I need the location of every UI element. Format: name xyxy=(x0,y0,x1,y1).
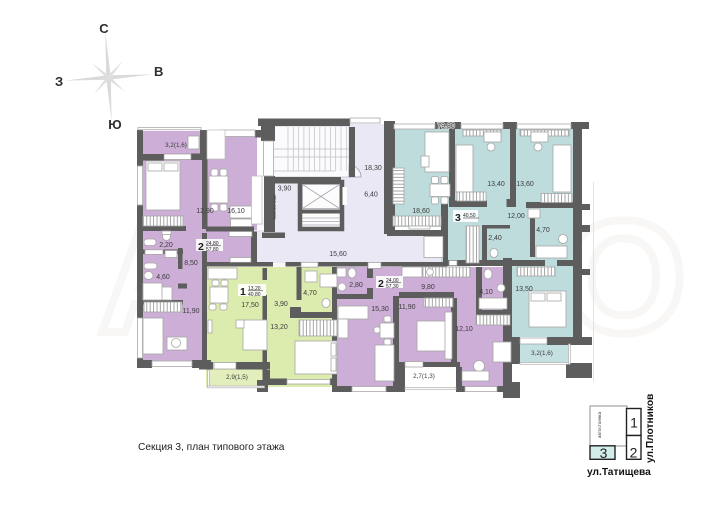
svg-text:13,40: 13,40 xyxy=(487,181,505,188)
svg-text:79,80: 79,80 xyxy=(437,123,455,130)
svg-text:2,7(1,3): 2,7(1,3) xyxy=(413,373,435,380)
svg-text:3: 3 xyxy=(600,445,608,461)
svg-text:40,80: 40,80 xyxy=(248,292,261,298)
svg-text:ул.Татищева: ул.Татищева xyxy=(587,467,651,478)
svg-text:11,90: 11,90 xyxy=(399,304,416,311)
svg-text:13,20: 13,20 xyxy=(270,324,288,331)
svg-text:4,60: 4,60 xyxy=(156,274,170,281)
svg-text:3,90: 3,90 xyxy=(274,301,288,308)
svg-text:1: 1 xyxy=(240,286,246,298)
svg-text:4,70: 4,70 xyxy=(303,290,317,297)
svg-text:Колясочная: Колясочная xyxy=(272,194,277,220)
svg-text:18,30: 18,30 xyxy=(364,165,382,172)
svg-text:17,50: 17,50 xyxy=(241,302,259,309)
svg-text:13,60: 13,60 xyxy=(516,181,534,188)
svg-text:2,9(1,5): 2,9(1,5) xyxy=(226,374,248,381)
svg-text:2: 2 xyxy=(378,278,384,290)
svg-text:4,70: 4,70 xyxy=(536,227,550,234)
svg-text:2,20: 2,20 xyxy=(159,242,173,249)
svg-text:8,50: 8,50 xyxy=(184,260,198,267)
svg-text:57,30: 57,30 xyxy=(386,284,399,290)
svg-text:2: 2 xyxy=(198,241,204,253)
svg-text:3,2(1,6): 3,2(1,6) xyxy=(531,350,553,357)
svg-text:15,30: 15,30 xyxy=(371,306,389,313)
svg-text:2: 2 xyxy=(630,445,638,461)
svg-text:12,10: 12,10 xyxy=(455,326,473,333)
svg-text:Ю: Ю xyxy=(108,117,121,132)
svg-text:6,40: 6,40 xyxy=(364,192,378,199)
svg-text:3,90: 3,90 xyxy=(278,186,292,193)
svg-text:2,40: 2,40 xyxy=(488,235,502,242)
svg-text:11,90: 11,90 xyxy=(183,308,200,315)
svg-text:С: С xyxy=(99,21,109,36)
svg-text:18,60: 18,60 xyxy=(412,208,430,215)
svg-text:13,50: 13,50 xyxy=(515,286,533,293)
svg-text:4,10: 4,10 xyxy=(479,289,493,296)
svg-text:16,10: 16,10 xyxy=(227,208,245,215)
svg-text:1: 1 xyxy=(630,415,638,431)
svg-text:15,60: 15,60 xyxy=(329,251,347,258)
svg-text:З: З xyxy=(55,74,63,89)
svg-text:57,80: 57,80 xyxy=(206,247,219,253)
svg-text:ул.Плотников: ул.Плотников xyxy=(645,394,656,463)
svg-text:3,2(1,6): 3,2(1,6) xyxy=(165,142,187,149)
svg-text:12,00: 12,00 xyxy=(507,213,525,220)
svg-text:2,80: 2,80 xyxy=(349,282,363,289)
svg-text:9,80: 9,80 xyxy=(421,284,435,291)
svg-text:Секция 3, план типового этажа: Секция 3, план типового этажа xyxy=(138,442,285,453)
svg-text:12,90: 12,90 xyxy=(196,208,214,215)
svg-text:В: В xyxy=(154,64,163,79)
svg-text:автостоянка: автостоянка xyxy=(597,412,602,439)
svg-text:3: 3 xyxy=(455,212,461,224)
